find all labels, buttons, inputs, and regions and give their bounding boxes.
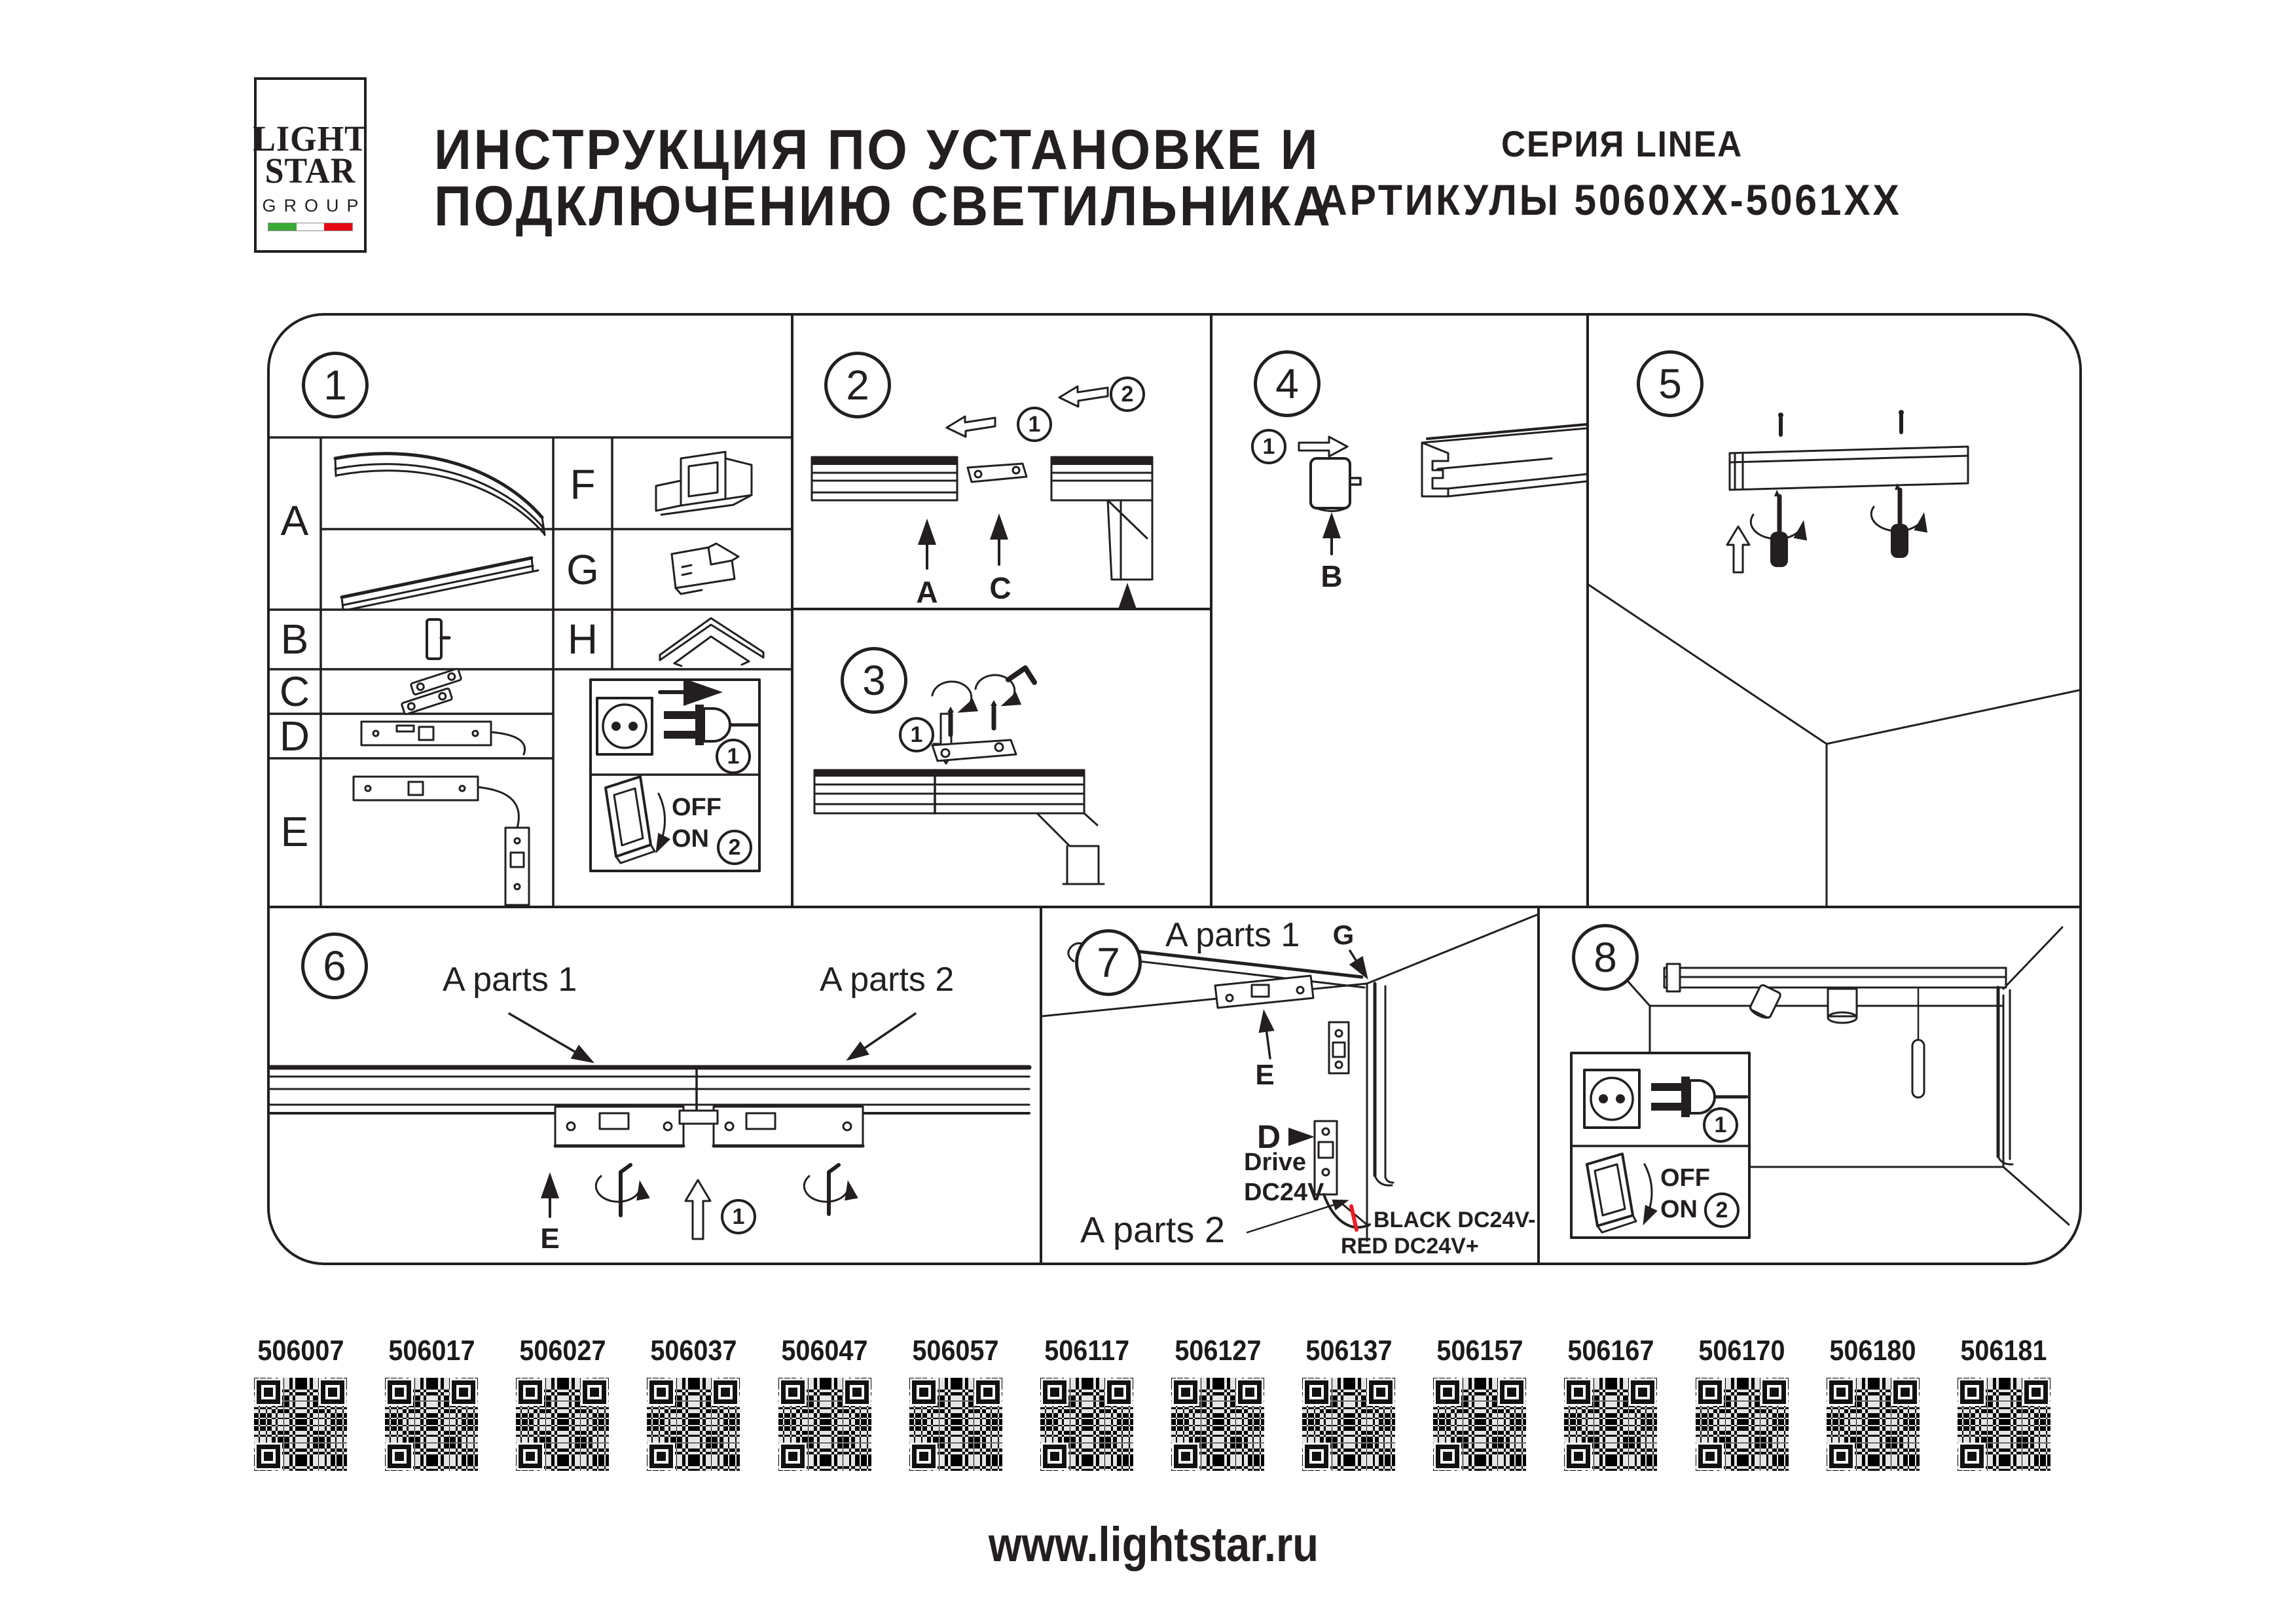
track-profile-3d	[1422, 424, 1587, 496]
article-number: 506017	[388, 1335, 475, 1367]
row-label-e: E	[281, 811, 309, 853]
track-corner-right	[1051, 457, 1152, 580]
wall-track	[1375, 984, 1393, 1185]
sec8-substep-2: 2	[1704, 1192, 1740, 1228]
off-label-1: OFF	[672, 795, 721, 820]
pendant-light	[1912, 987, 1924, 1098]
qr-item: 506170	[1690, 1335, 1794, 1471]
ceiling-track	[1664, 964, 2006, 991]
joint-connectors	[555, 1107, 863, 1146]
label-arrow-e	[1264, 1014, 1270, 1058]
qr-item: 506057	[904, 1335, 1008, 1471]
sec7-label-g: G	[1333, 921, 1355, 949]
substep-2-badge: 2	[717, 830, 752, 865]
lift-arrow	[1727, 526, 1749, 572]
step5-diagram	[1588, 410, 2079, 907]
sec4-label-b: B	[1321, 561, 1342, 591]
row-label-g: G	[566, 549, 599, 591]
substep-1-badge: 1	[716, 739, 751, 774]
sec2-label-c: C	[989, 573, 1011, 603]
row-label-f: F	[570, 464, 595, 506]
article-number: 506127	[1175, 1335, 1261, 1367]
article-number: 506137	[1305, 1335, 1392, 1367]
sec3-substep-1: 1	[899, 717, 934, 752]
qr-code	[1958, 1378, 2050, 1471]
article-number: 506167	[1567, 1335, 1654, 1367]
row-label-d: D	[280, 715, 310, 757]
qr-code-row: 506007 506017 506027 506037	[249, 1335, 2056, 1471]
qr-code	[516, 1378, 609, 1471]
part-g-connector	[672, 544, 738, 594]
step-1-badge: 1	[302, 352, 369, 418]
qr-code	[1171, 1378, 1264, 1471]
part-d-drive-strip	[361, 722, 525, 754]
sec6-label-e: E	[540, 1225, 559, 1253]
step2-diagram	[812, 386, 1152, 604]
sec7-drive-line2: DC24V	[1244, 1180, 1324, 1205]
qr-code	[1040, 1378, 1133, 1471]
sec7-red-wire-label: RED DC24V+	[1341, 1235, 1479, 1257]
qr-item: 506037	[642, 1335, 745, 1471]
step-4-badge: 4	[1254, 350, 1321, 417]
article-number: 506007	[257, 1335, 344, 1367]
qr-item: 506157	[1428, 1335, 1531, 1471]
sec7-a-parts-2: A parts 2	[1080, 1211, 1225, 1248]
sec2-substep-1: 1	[1017, 407, 1052, 442]
qr-item: 506017	[380, 1335, 483, 1471]
row-label-a: A	[281, 500, 309, 542]
sec7-a-parts-1: A parts 1	[1165, 918, 1300, 952]
article-number: 506157	[1436, 1335, 1523, 1367]
cylinder-light	[1828, 989, 1857, 1023]
sec6-a-parts-2: A parts 2	[820, 963, 954, 997]
part-a-curved-track	[335, 454, 545, 535]
sec2-label-a: A	[916, 577, 938, 607]
step6-diagram	[270, 1014, 1029, 1239]
qr-code	[1827, 1378, 1920, 1471]
instruction-sheet: LIGHT STAR GROUP ИНСТРУКЦИЯ ПО УСТАНОВКЕ…	[0, 0, 2296, 1624]
article-number: 506047	[781, 1335, 867, 1367]
wall-strip	[1329, 1022, 1349, 1073]
row-label-c: C	[280, 671, 310, 712]
sec7-label-e: E	[1255, 1061, 1274, 1090]
qr-code	[1302, 1378, 1395, 1471]
website-url: www.lightstar.ru	[989, 1521, 1319, 1569]
qr-item: 506047	[773, 1335, 877, 1471]
ceiling-edges	[1588, 584, 2079, 744]
slide-arrow-2	[1059, 386, 1108, 407]
lift-arrow	[685, 1180, 710, 1239]
article-number: 506170	[1698, 1335, 1785, 1367]
qr-item: 506137	[1297, 1335, 1400, 1471]
sec8-substep-1: 1	[1703, 1107, 1738, 1143]
screws	[1778, 410, 1904, 435]
qr-code	[909, 1378, 1002, 1471]
qr-item: 506007	[249, 1335, 352, 1471]
screwdrivers	[1751, 483, 1923, 567]
row-label-b: B	[281, 618, 309, 660]
slide-arrow-1	[947, 416, 995, 437]
article-number: 506057	[913, 1335, 999, 1367]
article-number: 506180	[1830, 1335, 1916, 1367]
label-arrow-g	[1350, 951, 1366, 976]
article-number: 506037	[650, 1335, 737, 1367]
step-2-badge: 2	[824, 352, 891, 418]
qr-code	[1564, 1378, 1657, 1471]
part-e-corner-strip	[354, 777, 529, 905]
on-label-1: ON	[672, 826, 709, 851]
part-c-plates	[401, 669, 462, 715]
qr-item: 506180	[1821, 1335, 1925, 1471]
a-parts-2-arrow	[850, 1014, 915, 1058]
article-number: 506117	[1044, 1335, 1129, 1367]
step-5-badge: 5	[1637, 350, 1704, 417]
sec2-substep-2: 2	[1110, 377, 1145, 412]
step-8-badge: 8	[1572, 924, 1639, 991]
step-3-badge: 3	[841, 647, 907, 714]
off-label-8: OFF	[1660, 1166, 1710, 1190]
track-a-left	[812, 457, 957, 500]
spotlight	[1749, 984, 1781, 1020]
qr-item: 506027	[511, 1335, 614, 1471]
qr-code	[385, 1378, 478, 1471]
on-label-8: ON	[1660, 1197, 1698, 1222]
part-b-end-cap	[427, 619, 449, 659]
step4-diagram	[1299, 424, 1587, 554]
joined-tracks-corner	[814, 770, 1104, 884]
qr-item: 506127	[1166, 1335, 1269, 1471]
wall-track	[1998, 987, 2013, 1164]
connector-plate-c	[968, 464, 1027, 482]
sec6-a-parts-1: A parts 1	[443, 963, 577, 997]
sec7-black-wire-label: BLACK DC24V-	[1374, 1209, 1535, 1231]
step8-diagram	[1571, 927, 2069, 1238]
sec7-drive-line1: Drive	[1244, 1150, 1306, 1175]
sec6-substep-1: 1	[721, 1199, 756, 1234]
article-number: 506027	[519, 1335, 606, 1367]
slide-arrow	[1299, 437, 1347, 456]
e-strip-ceiling	[1215, 976, 1313, 1008]
qr-code	[647, 1378, 740, 1471]
sec4-substep-1: 1	[1251, 429, 1286, 464]
track-bar	[1730, 447, 1968, 490]
part-h-corner	[660, 618, 763, 666]
end-cap-b	[1311, 458, 1360, 511]
step-7-badge: 7	[1075, 929, 1142, 996]
qr-code	[254, 1378, 347, 1471]
a-parts-1-arrow	[509, 1014, 591, 1061]
part-f-connector	[656, 452, 752, 515]
qr-item: 506117	[1035, 1335, 1139, 1471]
qr-item: 506167	[1559, 1335, 1662, 1471]
qr-code	[778, 1378, 871, 1471]
part-a-straight-track	[342, 558, 538, 610]
row-label-h: H	[568, 618, 598, 660]
article-number: 506181	[1961, 1335, 2047, 1367]
step-6-badge: 6	[301, 932, 368, 999]
qr-code	[1433, 1378, 1526, 1471]
qr-code	[1696, 1378, 1789, 1471]
qr-item: 506181	[1952, 1335, 2056, 1471]
